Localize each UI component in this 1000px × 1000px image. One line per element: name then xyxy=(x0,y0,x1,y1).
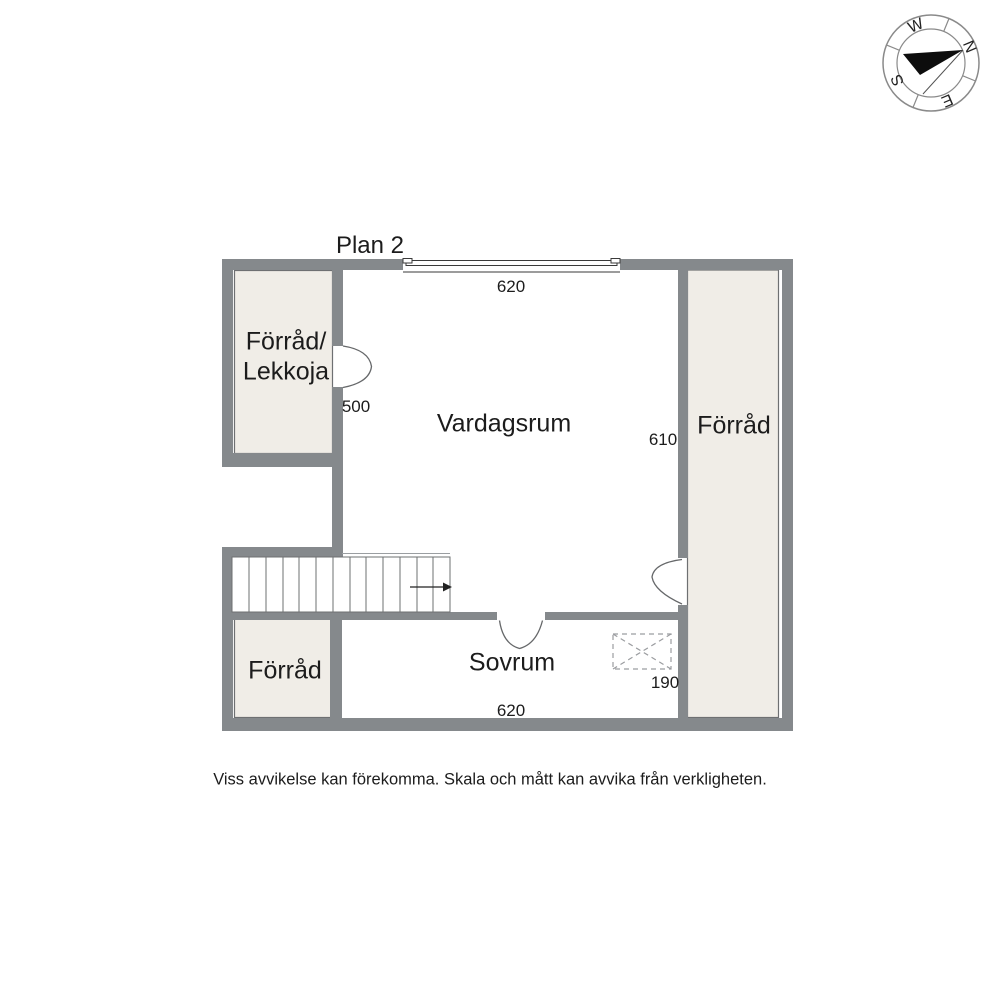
door-forrad-lekkoja xyxy=(343,346,372,388)
room-label-sovrum: Sovrum xyxy=(469,648,555,678)
dashed-hatch-symbol xyxy=(613,634,671,669)
room-forrad-right xyxy=(688,270,779,718)
disclaimer-text: Viss avvikelse kan förekomma. Skala och … xyxy=(213,770,767,789)
room-label-forrad-lekkoja: Förråd/ Lekkoja xyxy=(243,328,329,387)
stairs xyxy=(232,554,452,613)
floorplan-drawing: N E S W xyxy=(0,0,1000,1000)
dimension-bottom: 620 xyxy=(497,701,525,721)
compass-rose: N E S W xyxy=(883,15,979,111)
window-symbol xyxy=(403,258,620,273)
dimension-left: 500 xyxy=(342,397,370,417)
dimension-top: 620 xyxy=(497,277,525,297)
room-label-forrad-right: Förråd xyxy=(697,411,771,441)
door-sovrum xyxy=(500,621,543,649)
room-label-vardagsrum: Vardagsrum xyxy=(437,409,571,439)
room-label-forrad-bottom: Förråd xyxy=(248,656,322,686)
dimension-hatch: 190 xyxy=(651,673,679,693)
door-forrad-right xyxy=(652,560,682,605)
dimension-right: 610 xyxy=(649,430,677,450)
plan-title: Plan 2 xyxy=(336,232,404,260)
